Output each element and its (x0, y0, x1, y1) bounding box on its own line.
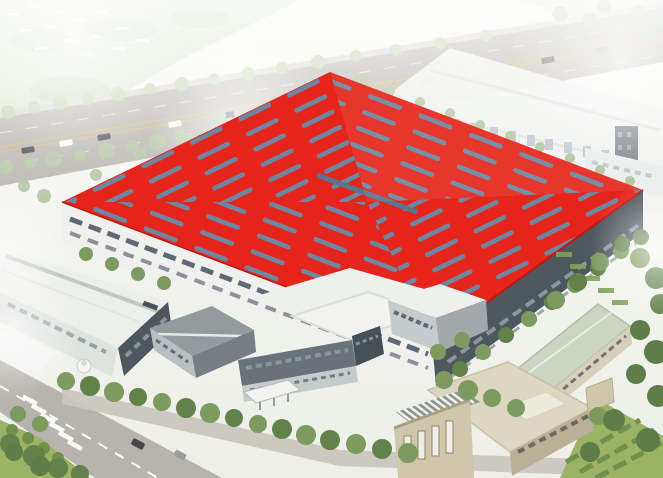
tree (249, 415, 267, 433)
hedge (6, 424, 18, 436)
hedge (570, 264, 586, 269)
tree (80, 376, 100, 396)
tree (79, 247, 93, 261)
tree (507, 399, 525, 417)
tree (521, 311, 537, 327)
tree (200, 403, 220, 423)
tree (603, 409, 625, 431)
tree (104, 382, 124, 402)
tree (5, 443, 23, 461)
tree (10, 406, 26, 422)
tree (296, 425, 316, 445)
tree (630, 320, 650, 340)
tree (547, 291, 565, 309)
tree (346, 434, 366, 454)
tree (398, 443, 418, 463)
tree (105, 257, 119, 271)
tree (636, 428, 660, 452)
window (432, 426, 439, 456)
hedge (556, 252, 572, 257)
tree (272, 419, 292, 439)
guard-booth-roof (81, 360, 87, 366)
tree (320, 430, 340, 450)
tree (452, 361, 468, 377)
tree (626, 364, 646, 384)
tree (569, 273, 587, 291)
tree (129, 388, 147, 406)
tree (430, 344, 446, 360)
tree (454, 332, 470, 348)
tree (498, 327, 514, 343)
tree (30, 456, 50, 476)
tree (32, 416, 48, 432)
tree (157, 276, 171, 290)
tree (153, 393, 171, 411)
tree (176, 398, 196, 418)
tree (483, 389, 501, 407)
tree (131, 267, 145, 281)
scene-canvas (0, 0, 663, 478)
aerial-campus-rendering (0, 0, 663, 478)
tree (372, 439, 392, 459)
tree (225, 409, 243, 427)
tree (475, 344, 491, 360)
window (446, 421, 453, 453)
tree (435, 371, 453, 389)
tree (48, 458, 68, 478)
tree (458, 380, 478, 400)
hedge (22, 432, 34, 444)
window (418, 431, 425, 459)
tree (580, 442, 600, 462)
